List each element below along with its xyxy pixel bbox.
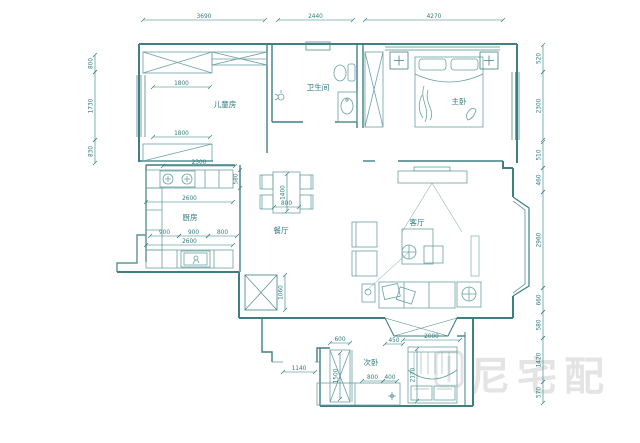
dimension: 1800 xyxy=(151,81,212,89)
dimension: 2960 xyxy=(537,190,546,290)
dimension: 1730 xyxy=(89,70,98,142)
dimension: 1060 xyxy=(279,273,288,312)
dim-label: 900 xyxy=(159,230,170,236)
dim-label: 1800 xyxy=(174,131,189,137)
watermark: 尼宅配 xyxy=(436,352,611,400)
dimension: 2300 xyxy=(537,70,546,142)
dimension: 520 xyxy=(537,43,546,74)
side-table-icon xyxy=(457,236,481,307)
dimension: 800 xyxy=(206,230,239,238)
dimension: 450 xyxy=(383,338,405,346)
dim-label: 2600 xyxy=(182,196,197,202)
second-desk-icon xyxy=(317,383,400,405)
dimension: 800 xyxy=(360,375,385,383)
dimension: 660 xyxy=(537,286,546,314)
dim-label: 800 xyxy=(217,230,228,236)
room-label: 儿童房 xyxy=(214,99,237,109)
floorplan-image: 尼宅配 xyxy=(0,0,640,443)
dimension: 1800 xyxy=(151,131,212,139)
dim-label: 580 xyxy=(537,319,543,330)
dim-label: 1420 xyxy=(537,352,543,367)
dim-label: 800 xyxy=(367,375,378,381)
shaft-column-icon xyxy=(245,275,277,310)
dimension: 4270 xyxy=(363,14,505,22)
dimension: 900 xyxy=(148,230,181,238)
dim-label: 2960 xyxy=(537,232,543,247)
kitchen-sink-icon xyxy=(146,250,233,268)
dim-label: 1800 xyxy=(174,81,189,87)
dimension: 800 xyxy=(89,53,98,74)
room-labels: 儿童房卫生间主卧厨房餐厅客厅次卧 xyxy=(182,82,467,367)
dim-label: 2300 xyxy=(537,98,543,113)
dim-label: 1400 xyxy=(281,185,287,200)
walls xyxy=(117,44,529,406)
master-bed-icon xyxy=(415,57,483,127)
dim-label: 4270 xyxy=(427,14,442,20)
tv-unit-icon xyxy=(398,167,467,232)
dim-label: 2600 xyxy=(182,239,197,245)
shower-icon xyxy=(275,90,284,100)
dim-label: 460 xyxy=(537,174,543,185)
master-nightstand-left-icon xyxy=(390,52,408,69)
dimension: 580 xyxy=(234,168,243,190)
dim-label: 3690 xyxy=(197,14,212,20)
dimension: 800 xyxy=(272,201,301,209)
dim-label: 600 xyxy=(334,337,345,343)
dim-label: 900 xyxy=(188,230,199,236)
dimension: 600 xyxy=(328,337,352,345)
bath-sink-icon xyxy=(338,92,357,122)
dim-label: 2440 xyxy=(308,14,323,20)
dim-label: 580 xyxy=(234,173,240,184)
dimension: 2440 xyxy=(276,14,355,22)
kitchen-stove-icon xyxy=(146,170,233,188)
room-label: 厨房 xyxy=(182,212,197,222)
dimension: 2170 xyxy=(411,347,420,403)
dimension: 400 xyxy=(381,375,399,383)
dim-label: 1730 xyxy=(89,98,95,113)
dim-label: 400 xyxy=(384,375,395,381)
dim-label: 830 xyxy=(89,146,95,157)
dim-label: 1060 xyxy=(279,285,285,300)
children-desk-icon xyxy=(143,144,212,161)
toilet-icon xyxy=(334,64,355,81)
dim-label: 510 xyxy=(537,149,543,160)
dim-label: 800 xyxy=(281,201,292,207)
floorplan-svg: 尼宅配 xyxy=(0,0,640,443)
dimension: 1140 xyxy=(281,366,317,374)
dim-label: 2170 xyxy=(411,367,417,382)
room-label: 卫生间 xyxy=(307,82,330,92)
room-label: 主卧 xyxy=(451,96,467,106)
dimension: 3690 xyxy=(141,14,267,22)
dim-label: 1500 xyxy=(334,368,340,383)
master-wardrobe-icon xyxy=(365,52,383,127)
dimension: 830 xyxy=(89,138,98,165)
dimension: 580 xyxy=(537,310,546,340)
dimension: 900 xyxy=(177,230,210,238)
kitchen-cabinet-icon xyxy=(146,188,162,250)
room-label: 次卧 xyxy=(363,357,379,367)
sofa-icon xyxy=(362,282,455,308)
armchair-icons xyxy=(352,222,377,276)
room-label: 餐厅 xyxy=(273,226,289,235)
dim-label: 800 xyxy=(89,58,95,69)
dim-label: 2300 xyxy=(192,160,207,166)
dim-label: 450 xyxy=(388,338,399,344)
dimension: 1500 xyxy=(334,351,343,401)
dim-label: 570 xyxy=(537,387,543,398)
dimension: 2600 xyxy=(144,239,235,247)
dimension: 2000 xyxy=(401,334,462,342)
dimension: 2600 xyxy=(144,196,235,204)
room-label: 客厅 xyxy=(409,217,425,227)
dimension: 510 xyxy=(537,140,546,170)
dim-label: 1140 xyxy=(292,366,307,372)
dim-label: 2000 xyxy=(424,334,439,340)
dimension: 460 xyxy=(537,166,546,194)
dim-label: 660 xyxy=(537,294,543,305)
children-wardrobe-icon xyxy=(143,52,267,73)
dim-label: 520 xyxy=(537,53,543,64)
